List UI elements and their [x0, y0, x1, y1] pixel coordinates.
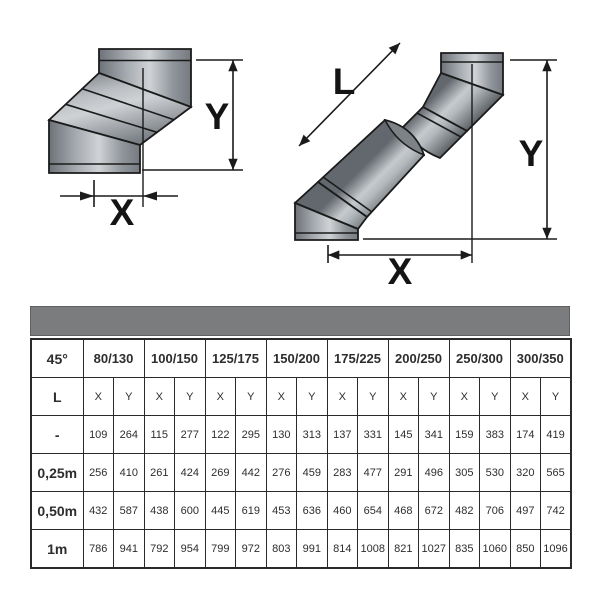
table-cell: 305 — [449, 454, 480, 492]
table-cell: 291 — [388, 454, 419, 492]
left-x-arrow-right — [80, 192, 94, 201]
table-cell: 174 — [510, 416, 541, 454]
page-canvas: Y X — [0, 0, 600, 600]
table-cell: 419 — [541, 416, 572, 454]
table-cell: 954 — [175, 530, 206, 569]
table-cell: 482 — [449, 492, 480, 530]
table-cell: 264 — [114, 416, 145, 454]
table-cell: 438 — [144, 492, 175, 530]
fitting-diagrams: Y X — [0, 0, 600, 300]
row-label-cell: - — [31, 416, 83, 454]
table-cell: 276 — [266, 454, 297, 492]
table-cell: 706 — [480, 492, 511, 530]
table-cell: 530 — [480, 454, 511, 492]
size-header-cell: 300/350 — [510, 339, 571, 378]
table-cell: 341 — [419, 416, 450, 454]
table-cell: 496 — [419, 454, 450, 492]
xy-header-cell: Y — [480, 378, 511, 416]
left-y-label: Y — [205, 96, 230, 137]
table-cell: 619 — [236, 492, 267, 530]
corner-l-cell: L — [31, 378, 83, 416]
table-cell: 459 — [297, 454, 328, 492]
left-pipe-body — [49, 49, 191, 173]
table-cell: 115 — [144, 416, 175, 454]
table-cell: 742 — [541, 492, 572, 530]
table-cell: 941 — [114, 530, 145, 569]
table-cell: 295 — [236, 416, 267, 454]
table-cell: 159 — [449, 416, 480, 454]
xy-header-cell: X — [205, 378, 236, 416]
table-cell: 600 — [175, 492, 206, 530]
xy-header-cell: Y — [541, 378, 572, 416]
table-cell: 331 — [358, 416, 389, 454]
table-cell: 654 — [358, 492, 389, 530]
xy-header-cell: X — [144, 378, 175, 416]
row-label-cell: 1m — [31, 530, 83, 569]
table-cell: 803 — [266, 530, 297, 569]
table-cell: 799 — [205, 530, 236, 569]
size-header-cell: 80/130 — [83, 339, 144, 378]
right-l-label: L — [333, 61, 356, 102]
table-cell: 672 — [419, 492, 450, 530]
table-cell: 565 — [541, 454, 572, 492]
xy-header-cell: Y — [358, 378, 389, 416]
xy-header-cell: Y — [419, 378, 450, 416]
table-cell: 497 — [510, 492, 541, 530]
size-header-cell: 175/225 — [327, 339, 388, 378]
table-cell: 283 — [327, 454, 358, 492]
table-cell: 383 — [480, 416, 511, 454]
xy-header-cell: X — [266, 378, 297, 416]
xy-header-cell: Y — [175, 378, 206, 416]
size-header-cell: 200/250 — [388, 339, 449, 378]
table-cell: 453 — [266, 492, 297, 530]
xy-header-cell: X — [510, 378, 541, 416]
table-cell: 1060 — [480, 530, 511, 569]
table-cell: 256 — [83, 454, 114, 492]
xy-header-cell: X — [388, 378, 419, 416]
size-header-cell: 125/175 — [205, 339, 266, 378]
table-cell: 850 — [510, 530, 541, 569]
left-x-arrow-left — [143, 192, 157, 201]
table-title-band — [30, 306, 570, 336]
table-cell: 1008 — [358, 530, 389, 569]
table-cell: 137 — [327, 416, 358, 454]
table-cell: 468 — [388, 492, 419, 530]
xy-header-row: LXYXYXYXYXYXYXYXY — [31, 378, 571, 416]
xy-header-cell: Y — [236, 378, 267, 416]
right-y-label: Y — [519, 133, 544, 174]
table-cell: 636 — [297, 492, 328, 530]
table-cell: 269 — [205, 454, 236, 492]
right-x-label: X — [388, 251, 413, 292]
table-cell: 424 — [175, 454, 206, 492]
corner-angle-cell: 45° — [31, 339, 83, 378]
table-row: -109264115277122295130313137331145341159… — [31, 416, 571, 454]
table-cell: 130 — [266, 416, 297, 454]
row-label-cell: 0,50m — [31, 492, 83, 530]
right-fitting-diagram: L Y X — [295, 43, 557, 292]
table-row: 0,50m43258743860044561945363646065446867… — [31, 492, 571, 530]
table-cell: 445 — [205, 492, 236, 530]
table-cell: 145 — [388, 416, 419, 454]
table-cell: 835 — [449, 530, 480, 569]
table-cell: 1096 — [541, 530, 572, 569]
left-fitting-diagram: Y X — [49, 49, 243, 233]
xy-header-cell: Y — [297, 378, 328, 416]
table-cell: 277 — [175, 416, 206, 454]
table-cell: 442 — [236, 454, 267, 492]
table-cell: 410 — [114, 454, 145, 492]
table-row: 0,25m25641026142426944227645928347729149… — [31, 454, 571, 492]
table-cell: 814 — [327, 530, 358, 569]
spec-table: 45°80/130100/150125/175150/200175/225200… — [30, 338, 572, 569]
table-cell: 320 — [510, 454, 541, 492]
left-x-label: X — [110, 192, 135, 233]
size-header-cell: 100/150 — [144, 339, 205, 378]
table-cell: 122 — [205, 416, 236, 454]
table-cell: 460 — [327, 492, 358, 530]
xy-header-cell: X — [327, 378, 358, 416]
table-cell: 109 — [83, 416, 114, 454]
xy-header-cell: X — [83, 378, 114, 416]
table-cell: 477 — [358, 454, 389, 492]
table-cell: 261 — [144, 454, 175, 492]
table-cell: 786 — [83, 530, 114, 569]
table-cell: 432 — [83, 492, 114, 530]
table-cell: 587 — [114, 492, 145, 530]
spec-table-body: 45°80/130100/150125/175150/200175/225200… — [31, 339, 571, 568]
table-cell: 821 — [388, 530, 419, 569]
table-cell: 313 — [297, 416, 328, 454]
table-row: 1m78694179295479997280399181410088211027… — [31, 530, 571, 569]
size-header-cell: 150/200 — [266, 339, 327, 378]
xy-header-cell: X — [449, 378, 480, 416]
size-header-cell: 250/300 — [449, 339, 510, 378]
xy-header-cell: Y — [114, 378, 145, 416]
table-cell: 991 — [297, 530, 328, 569]
table-cell: 1027 — [419, 530, 450, 569]
row-label-cell: 0,25m — [31, 454, 83, 492]
spec-table-section: 45°80/130100/150125/175150/200175/225200… — [30, 306, 570, 569]
size-header-row: 45°80/130100/150125/175150/200175/225200… — [31, 339, 571, 378]
table-cell: 792 — [144, 530, 175, 569]
table-cell: 972 — [236, 530, 267, 569]
